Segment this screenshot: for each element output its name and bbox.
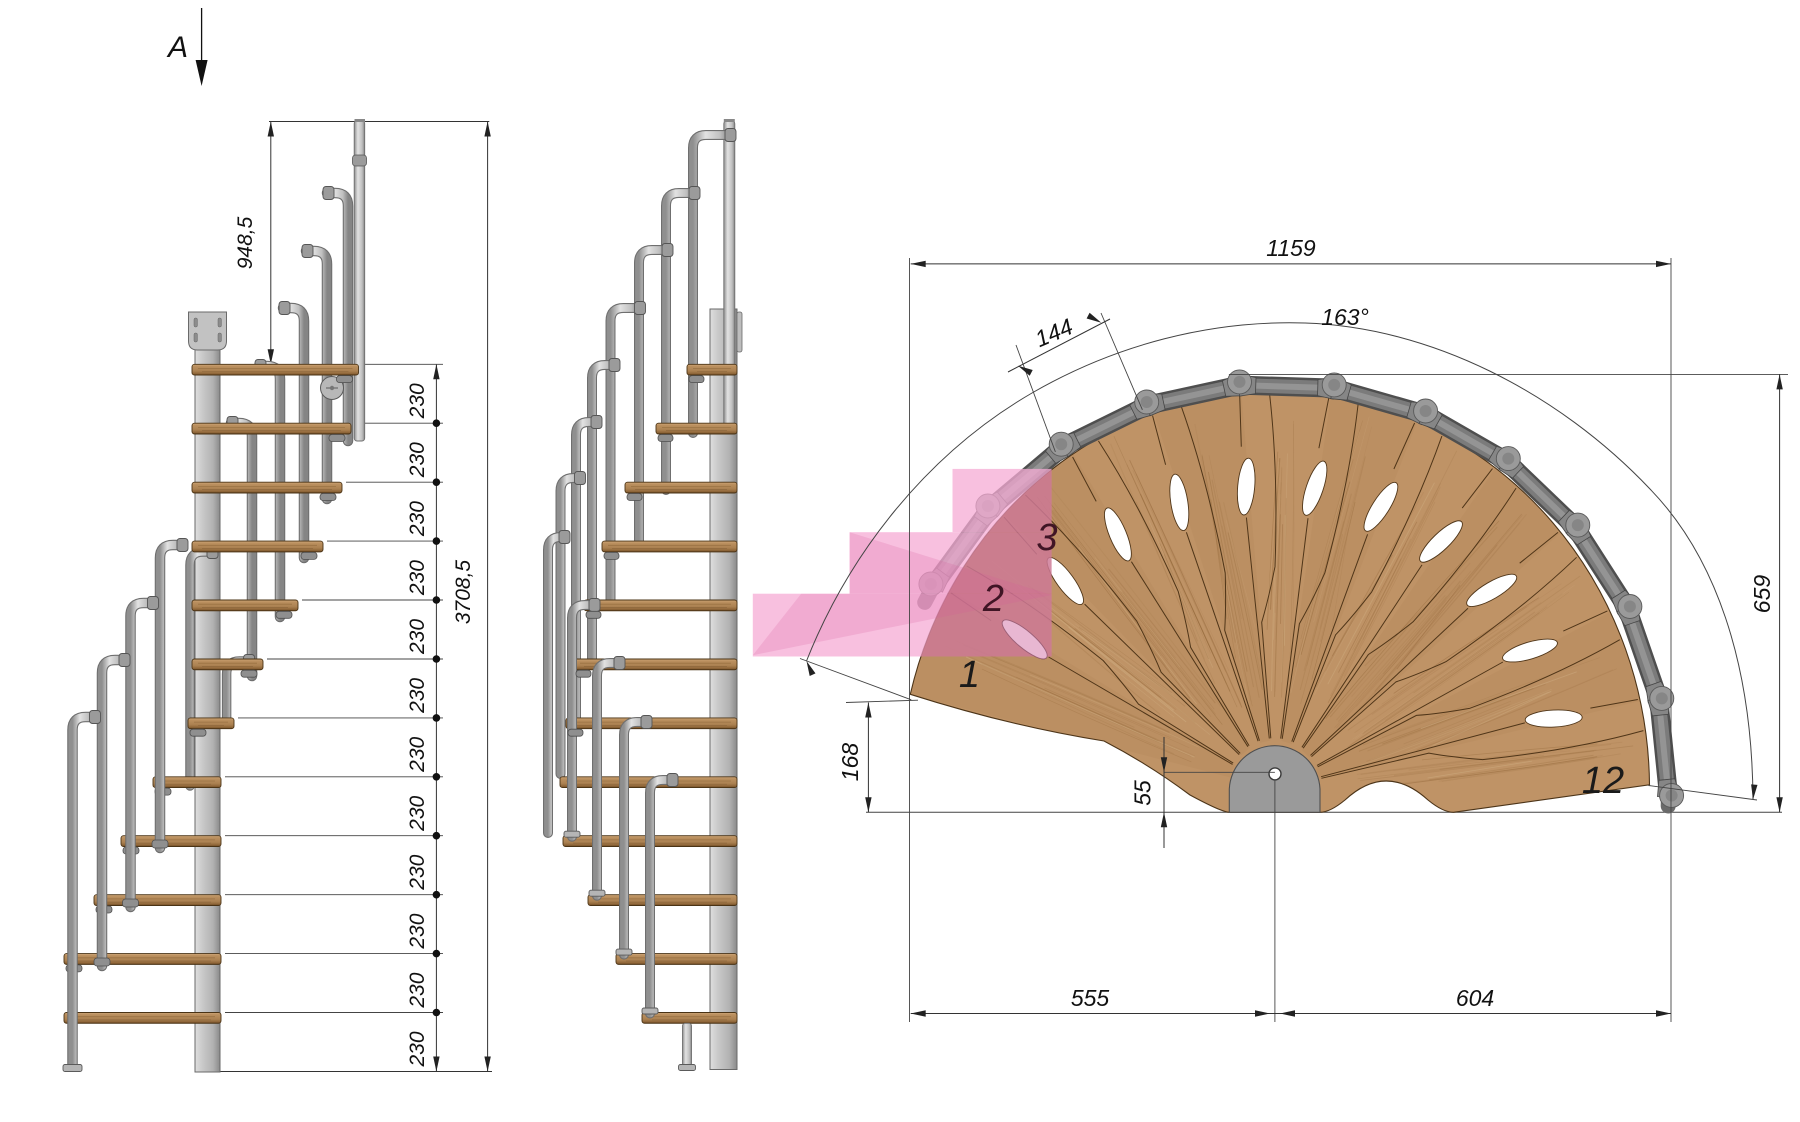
svg-text:230: 230 <box>406 913 429 949</box>
svg-text:230: 230 <box>406 795 429 831</box>
svg-text:659: 659 <box>1749 575 1775 614</box>
svg-text:12: 12 <box>1582 760 1624 802</box>
svg-text:A: A <box>166 31 188 64</box>
svg-text:948,5: 948,5 <box>234 216 257 269</box>
svg-text:230: 230 <box>406 501 429 537</box>
svg-text:230: 230 <box>406 1031 429 1067</box>
svg-text:230: 230 <box>406 383 429 419</box>
svg-text:55: 55 <box>1130 780 1156 806</box>
svg-text:230: 230 <box>406 619 429 655</box>
svg-text:230: 230 <box>406 972 429 1008</box>
svg-text:1159: 1159 <box>1266 235 1316 261</box>
svg-text:163°: 163° <box>1321 304 1369 330</box>
svg-text:604: 604 <box>1456 985 1494 1011</box>
svg-text:230: 230 <box>406 678 429 714</box>
svg-text:230: 230 <box>406 560 429 596</box>
svg-text:230: 230 <box>406 854 429 890</box>
svg-text:555: 555 <box>1071 985 1110 1011</box>
svg-text:1: 1 <box>959 654 980 696</box>
svg-text:3708,5: 3708,5 <box>452 560 475 625</box>
svg-text:230: 230 <box>406 736 429 772</box>
svg-text:168: 168 <box>837 743 863 782</box>
svg-text:3: 3 <box>1036 517 1057 559</box>
svg-text:230: 230 <box>406 442 429 478</box>
svg-text:2: 2 <box>982 578 1004 620</box>
